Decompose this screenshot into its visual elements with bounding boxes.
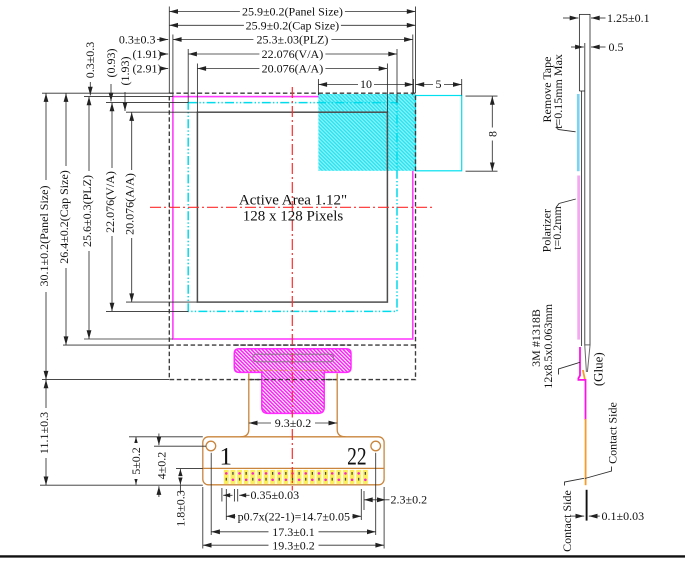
svg-text:20.076(A/A): 20.076(A/A) [262, 62, 324, 76]
svg-text:22: 22 [347, 443, 367, 470]
svg-text:t=0.15mm Max: t=0.15mm Max [551, 54, 565, 129]
svg-text:128 x 128 Pixels: 128 x 128 Pixels [243, 208, 344, 224]
svg-text:25.9±0.2(Panel Size): 25.9±0.2(Panel Size) [242, 5, 343, 19]
svg-text:Contact Side: Contact Side [605, 402, 619, 464]
svg-text:26.4±0.2(Cap Size): 26.4±0.2(Cap Size) [57, 170, 71, 264]
svg-text:(1.93): (1.93) [118, 57, 132, 86]
svg-text:Contact Side: Contact Side [560, 490, 574, 552]
svg-text:5±0.2: 5±0.2 [129, 447, 143, 475]
svg-text:0.3±0.3: 0.3±0.3 [83, 42, 97, 79]
svg-text:Active Area 1.12": Active Area 1.12" [239, 193, 347, 209]
svg-text:1.8±0.3: 1.8±0.3 [173, 490, 187, 527]
svg-text:t=0.2mm: t=0.2mm [550, 205, 564, 249]
svg-text:30.1±0.2(Panel Size): 30.1±0.2(Panel Size) [37, 186, 51, 287]
svg-text:22.076(V/A): 22.076(V/A) [103, 171, 117, 233]
svg-text:(2.91): (2.91) [133, 62, 162, 76]
svg-text:20.076(A/A): 20.076(A/A) [123, 173, 137, 235]
svg-text:5: 5 [436, 77, 442, 91]
svg-text:17.3±0.1: 17.3±0.1 [272, 525, 315, 539]
svg-text:25.3±.03(PLZ): 25.3±.03(PLZ) [256, 33, 328, 47]
svg-text:0.5: 0.5 [609, 40, 624, 54]
svg-text:25.6±0.3(PLZ): 25.6±0.3(PLZ) [80, 175, 94, 247]
svg-text:0.3±0.3: 0.3±0.3 [119, 33, 156, 47]
svg-text:8: 8 [485, 131, 499, 137]
svg-text:1.25±0.1: 1.25±0.1 [607, 11, 650, 25]
svg-text:(1.91): (1.91) [133, 47, 162, 61]
svg-text:19.3±0.2: 19.3±0.2 [272, 538, 315, 552]
svg-text:1: 1 [219, 443, 232, 470]
svg-text:0.1±0.03: 0.1±0.03 [602, 509, 645, 523]
svg-text:p0.7x(22-1)=14.7±0.05: p0.7x(22-1)=14.7±0.05 [238, 509, 350, 523]
svg-text:22.076(V/A): 22.076(V/A) [262, 47, 324, 61]
svg-text:25.9±0.2(Cap Size): 25.9±0.2(Cap Size) [246, 18, 340, 32]
svg-text:(Glue): (Glue) [591, 352, 606, 386]
svg-text:10: 10 [360, 77, 372, 91]
svg-text:4±0.2: 4±0.2 [155, 452, 169, 480]
svg-text:2.3±0.2: 2.3±0.2 [391, 493, 428, 507]
svg-text:0.35±0.03: 0.35±0.03 [251, 488, 300, 502]
svg-text:11.1±0.3: 11.1±0.3 [37, 412, 51, 454]
svg-text:9.3±0.2: 9.3±0.2 [275, 416, 312, 430]
svg-text:12x8.5x0.063mm: 12x8.5x0.063mm [541, 303, 555, 388]
svg-text:(0.93): (0.93) [104, 49, 118, 78]
